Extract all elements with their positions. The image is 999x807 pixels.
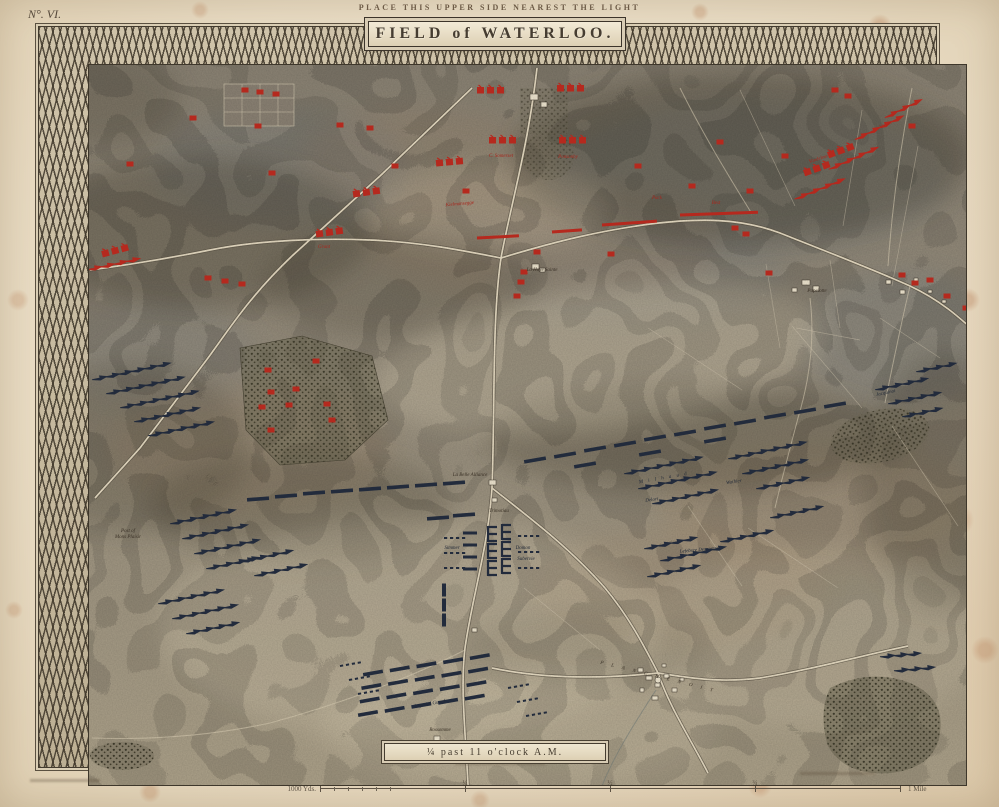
map-area: La Haye SainteLa Belle AllianceTrimotiau… (88, 64, 967, 786)
unit-marker-rb (269, 171, 276, 176)
unit-marker-rb (255, 124, 262, 129)
scale-half-label: ½ (607, 779, 612, 787)
place-label: La Haye Sainte (526, 268, 559, 273)
unit-marker-rb (518, 280, 525, 285)
unit-marker-rb (944, 294, 951, 299)
place-label: La Belle Alliance (452, 473, 488, 478)
unit-marker-rb (899, 273, 906, 278)
unit-marker-rb (127, 162, 134, 167)
scale-threequarter-label: ¾ (752, 779, 757, 787)
unit-marker-rb (392, 164, 399, 169)
engraving-grain (89, 65, 966, 785)
title-plaque: FIELD of WATERLOO. (368, 21, 622, 47)
plate-number: N°. VI. (28, 7, 61, 22)
unit-marker-rb (909, 124, 916, 129)
allied-unit-label: C. Somerset (489, 154, 514, 159)
unit-marker-rf3 (477, 85, 504, 94)
unit-marker-rb (242, 88, 249, 93)
unit-marker-rb (190, 116, 197, 121)
unit-marker-dvb (442, 584, 446, 597)
unit-marker-rb (268, 390, 275, 395)
unit-marker-db2 (463, 532, 477, 535)
unit-marker-rb (268, 428, 275, 433)
unit-marker-rb (845, 94, 852, 99)
place-label: Rossomme (428, 728, 451, 733)
unit-marker-rb (534, 250, 541, 255)
unit-marker-rb (259, 405, 266, 410)
unit-marker-rb (717, 140, 724, 145)
unit-marker-rb (927, 278, 934, 283)
place-label: Mons Plaisir (114, 535, 141, 540)
allied-unit-label: Grant (318, 245, 331, 250)
unit-marker-rf3 (559, 135, 586, 144)
unit-marker-rb (329, 418, 336, 423)
allied-unit-label: Pack (651, 196, 663, 201)
unit-marker-rb (689, 184, 696, 189)
unit-marker-rb (766, 271, 773, 276)
unit-marker-rb (205, 276, 212, 281)
unit-marker-rb (463, 189, 470, 194)
unit-marker-rb (608, 252, 615, 257)
engraver-imprint-smudge (800, 772, 875, 775)
unit-marker-rb (367, 126, 374, 131)
scale-left-label: 1000 Yds. (287, 785, 316, 793)
waterloo-map: La Haye SainteLa Belle AllianceTrimotiau… (89, 65, 966, 785)
unit-marker-rb (732, 226, 739, 231)
french-unit-label: Simmer (444, 546, 459, 551)
french-unit-label: Domon (515, 546, 531, 551)
unit-marker-rb (337, 123, 344, 128)
unit-marker-db2 (463, 556, 477, 559)
unit-marker-rb (286, 403, 293, 408)
scale-bar: 1000 Yds. ¼ ½ ¾ 1 Mile (320, 788, 900, 799)
unit-marker-dvb (442, 599, 446, 612)
unit-marker-rf3 (557, 83, 584, 92)
unit-marker-rb (743, 232, 750, 237)
unit-marker-rb (912, 281, 919, 286)
place-label: Trimotiau (489, 509, 509, 514)
unit-marker-db2 (463, 544, 477, 547)
unit-marker-rb (239, 282, 246, 287)
unit-marker-dvb (442, 614, 446, 627)
place-label: Papelotte (806, 289, 827, 294)
allied-unit-label: Ponsonby (557, 155, 579, 160)
unit-marker-rb (222, 279, 229, 284)
unit-marker-rb (514, 294, 521, 299)
unit-marker-db2 (463, 568, 477, 571)
unit-marker-rb (257, 90, 264, 95)
map-title: FIELD of WATERLOO. (376, 25, 615, 43)
scale-quarter-label: ¼ (462, 779, 467, 787)
unit-marker-rb (293, 387, 300, 392)
scale-mile-label: 1 Mile (908, 785, 926, 793)
publication-line-smudge (455, 763, 545, 765)
unit-marker-rb (782, 154, 789, 159)
time-plaque: ¼ past 11 o'clock A.M. (384, 743, 606, 761)
allied-unit-label: Best (712, 201, 721, 206)
unit-marker-rb (963, 306, 967, 311)
publisher-imprint-smudge (30, 779, 100, 782)
unit-marker-rb (313, 359, 320, 364)
unit-marker-rb (747, 189, 754, 194)
place-label: Post of (120, 529, 136, 534)
unit-marker-rb (324, 402, 331, 407)
unit-marker-rb (832, 88, 839, 93)
unit-marker-rb (265, 368, 272, 373)
unit-marker-rf3 (489, 135, 516, 144)
map-sheet: PLACE THIS UPPER SIDE NEAREST THE LIGHT … (0, 0, 999, 807)
orientation-note: PLACE THIS UPPER SIDE NEAREST THE LIGHT (0, 3, 999, 12)
decorative-border: La Haye SainteLa Belle AllianceTrimotiau… (38, 26, 937, 768)
time-caption: ¼ past 11 o'clock A.M. (427, 747, 563, 758)
unit-marker-rb (273, 92, 280, 97)
unit-marker-rb (635, 164, 642, 169)
french-unit-label: Subervie (517, 557, 535, 562)
